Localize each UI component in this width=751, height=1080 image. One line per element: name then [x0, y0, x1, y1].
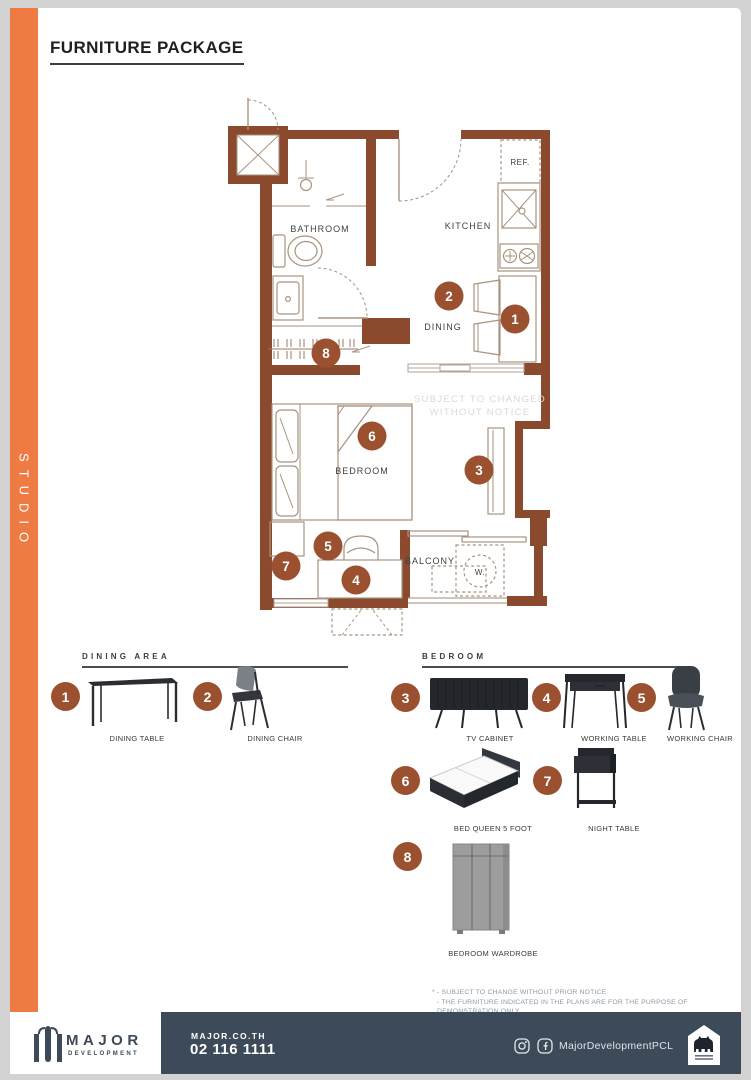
legend-label-bed-queen: BED QUEEN 5 FOOT — [438, 824, 548, 833]
plan-marker-6: 6 — [358, 422, 387, 451]
svg-text:1: 1 — [511, 312, 519, 327]
svg-text:SUBJECT TO CHANGED: SUBJECT TO CHANGED — [414, 394, 546, 405]
instagram-icon — [514, 1038, 530, 1054]
entry-door — [399, 139, 461, 201]
legend-marker-3: 3 — [391, 683, 420, 712]
toilet — [273, 235, 322, 267]
svg-text:8: 8 — [322, 346, 330, 361]
plan-marker-7: 7 — [272, 552, 301, 581]
tv-cabinet-image — [424, 672, 534, 730]
plan-marker-1: 1 — [501, 305, 530, 334]
legend-label-bedroom-wardrobe: BEDROOM WARDROBE — [438, 949, 548, 958]
svg-text:3: 3 — [475, 463, 483, 478]
working-table-image — [562, 668, 628, 732]
legend-label-dining-chair: DINING CHAIR — [220, 734, 330, 743]
bathroom-sink — [273, 276, 303, 320]
major-development-logo-icon — [33, 1022, 63, 1064]
phone-number: 02 116 1111 — [190, 1041, 276, 1058]
kitchen-label: KITCHEN — [445, 221, 492, 231]
legend-label-working-chair: WORKING CHAIR — [645, 734, 751, 743]
legend-marker-2: 2 — [193, 682, 222, 711]
balcony-railing — [408, 598, 507, 603]
website-url: MAJOR.CO.TH — [191, 1031, 266, 1041]
bathroom-door — [318, 268, 368, 318]
svg-text:7: 7 — [282, 559, 290, 574]
watermark: SUBJECT TO CHANGED WITHOUT NOTICE — [414, 394, 546, 418]
section-title-bedroom: BEDROOM — [422, 652, 486, 661]
section-divider-bedroom — [422, 666, 688, 668]
night-table-symbol — [270, 522, 304, 556]
svg-text:5: 5 — [324, 539, 332, 554]
facebook-icon — [537, 1038, 553, 1054]
bed-queen-image — [424, 748, 530, 814]
legend-marker-1: 1 — [51, 682, 80, 711]
brand-name: MAJOR — [66, 1032, 143, 1049]
night-table-image — [566, 746, 626, 814]
plan-marker-8: 8 — [312, 339, 341, 368]
dining-chair-image — [224, 664, 274, 734]
plan-marker-2: 2 — [435, 282, 464, 311]
washer-label: W. — [475, 568, 485, 577]
social-handle: MajorDevelopmentPCL — [559, 1040, 673, 1052]
footer: MAJOR DEVELOPMENT MAJOR.CO.TH 02 116 111… — [10, 1012, 741, 1074]
svg-text:2: 2 — [445, 289, 453, 304]
brand-subtitle: DEVELOPMENT — [68, 1051, 139, 1057]
svg-text:4: 4 — [352, 573, 360, 588]
legend-label-tv-cabinet: TV CABINET — [435, 734, 545, 743]
legend-label-night-table: NIGHT TABLE — [559, 824, 669, 833]
disclaimer-line-1: * - SUBJECT TO CHANGE WITHOUT PRIOR NOTI… — [432, 988, 742, 998]
unit-type-sidebar: STUDIO — [10, 8, 38, 1017]
plan-marker-5: 5 — [314, 532, 343, 561]
washer-symbol: W. — [432, 545, 504, 596]
ac-unit-symbol — [332, 609, 402, 635]
unit-type-label: STUDIO — [17, 453, 32, 550]
balcony-sliding-door — [408, 531, 526, 542]
bathroom-label: BATHROOM — [290, 224, 349, 234]
svg-text:WITHOUT NOTICE: WITHOUT NOTICE — [430, 407, 531, 418]
pet-friendly-residences-logo — [687, 1024, 721, 1066]
floor-plan: REF. — [215, 93, 560, 643]
window-dining-bedroom — [408, 364, 524, 372]
brochure-page: STUDIO FURNITURE PACKAGE — [10, 8, 741, 1074]
dining-label: DINING — [424, 322, 462, 332]
service-shaft — [237, 135, 279, 175]
refrigerator-label: REF. — [510, 158, 529, 167]
window-bottom — [274, 599, 328, 607]
bedroom-label: BEDROOM — [335, 466, 389, 476]
working-chair-image — [658, 664, 714, 734]
corridor-door — [248, 98, 278, 130]
section-title-dining-area: DINING AREA — [82, 652, 170, 661]
legend-marker-5: 5 — [627, 683, 656, 712]
bed-symbol — [272, 404, 412, 520]
svg-text:6: 6 — [368, 429, 376, 444]
plan-marker-4: 4 — [342, 566, 371, 595]
dining-chairs-symbol — [474, 280, 500, 355]
legend-marker-8: 8 — [393, 842, 422, 871]
page-title: FURNITURE PACKAGE — [50, 38, 244, 65]
bedroom-wardrobe-image — [449, 842, 515, 938]
plan-marker-3: 3 — [465, 456, 494, 485]
balcony-label: BALCONY — [405, 556, 455, 566]
legend-marker-6: 6 — [391, 766, 420, 795]
legend-marker-4: 4 — [532, 683, 561, 712]
legend-marker-7: 7 — [533, 766, 562, 795]
dining-table-image — [84, 668, 182, 734]
legend-label-dining-table: DINING TABLE — [82, 734, 192, 743]
